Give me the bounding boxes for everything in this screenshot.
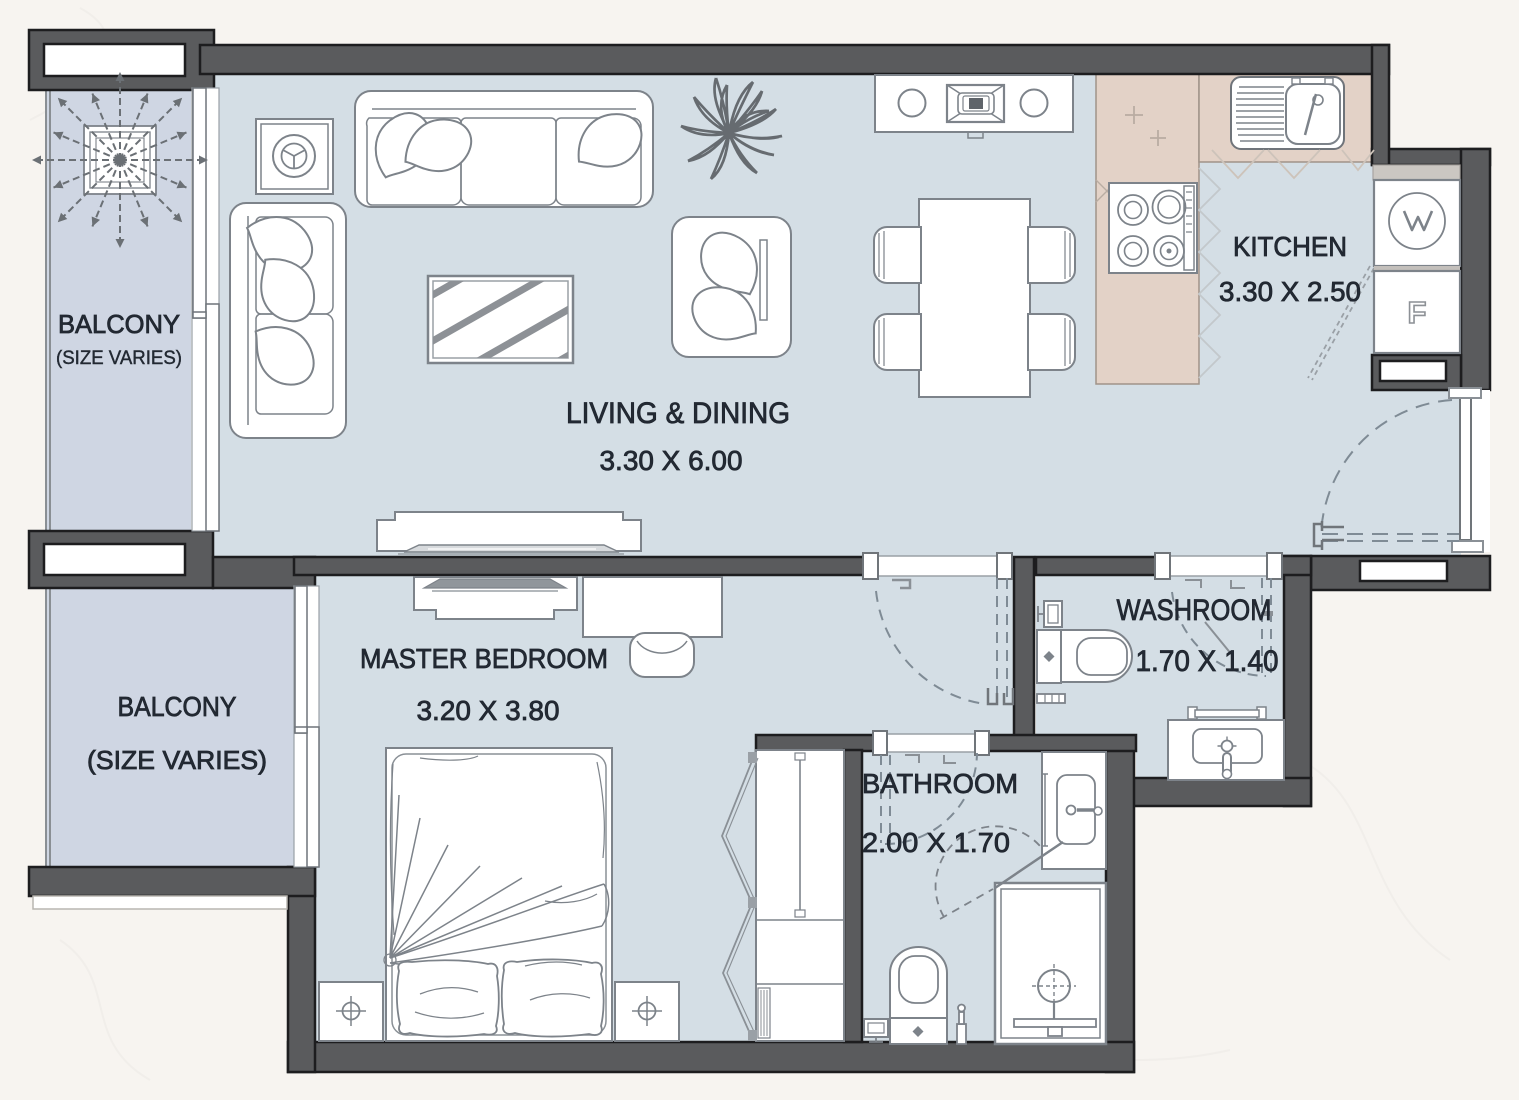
- svg-text:(SIZE VARIES): (SIZE VARIES): [56, 348, 182, 369]
- svg-text:2.00 X 1.70: 2.00 X 1.70: [862, 827, 1010, 858]
- svg-text:LIVING & DINING: LIVING & DINING: [566, 397, 790, 430]
- svg-text:1.70 X 1.40: 1.70 X 1.40: [1136, 645, 1279, 678]
- svg-text:WASHROOM: WASHROOM: [1117, 594, 1272, 627]
- svg-text:BALCONY: BALCONY: [58, 309, 180, 339]
- svg-text:BALCONY: BALCONY: [118, 691, 237, 722]
- svg-text:MASTER BEDROOM: MASTER BEDROOM: [360, 643, 608, 674]
- svg-text:3.30 X 6.00: 3.30 X 6.00: [600, 445, 743, 476]
- svg-text:KITCHEN: KITCHEN: [1233, 231, 1347, 262]
- svg-text:BATHROOM: BATHROOM: [862, 768, 1018, 799]
- svg-text:(SIZE VARIES): (SIZE VARIES): [87, 745, 267, 775]
- svg-text:F: F: [1408, 295, 1427, 330]
- svg-text:3.20 X 3.80: 3.20 X 3.80: [417, 695, 560, 726]
- svg-text:3.30 X 2.50: 3.30 X 2.50: [1219, 276, 1361, 307]
